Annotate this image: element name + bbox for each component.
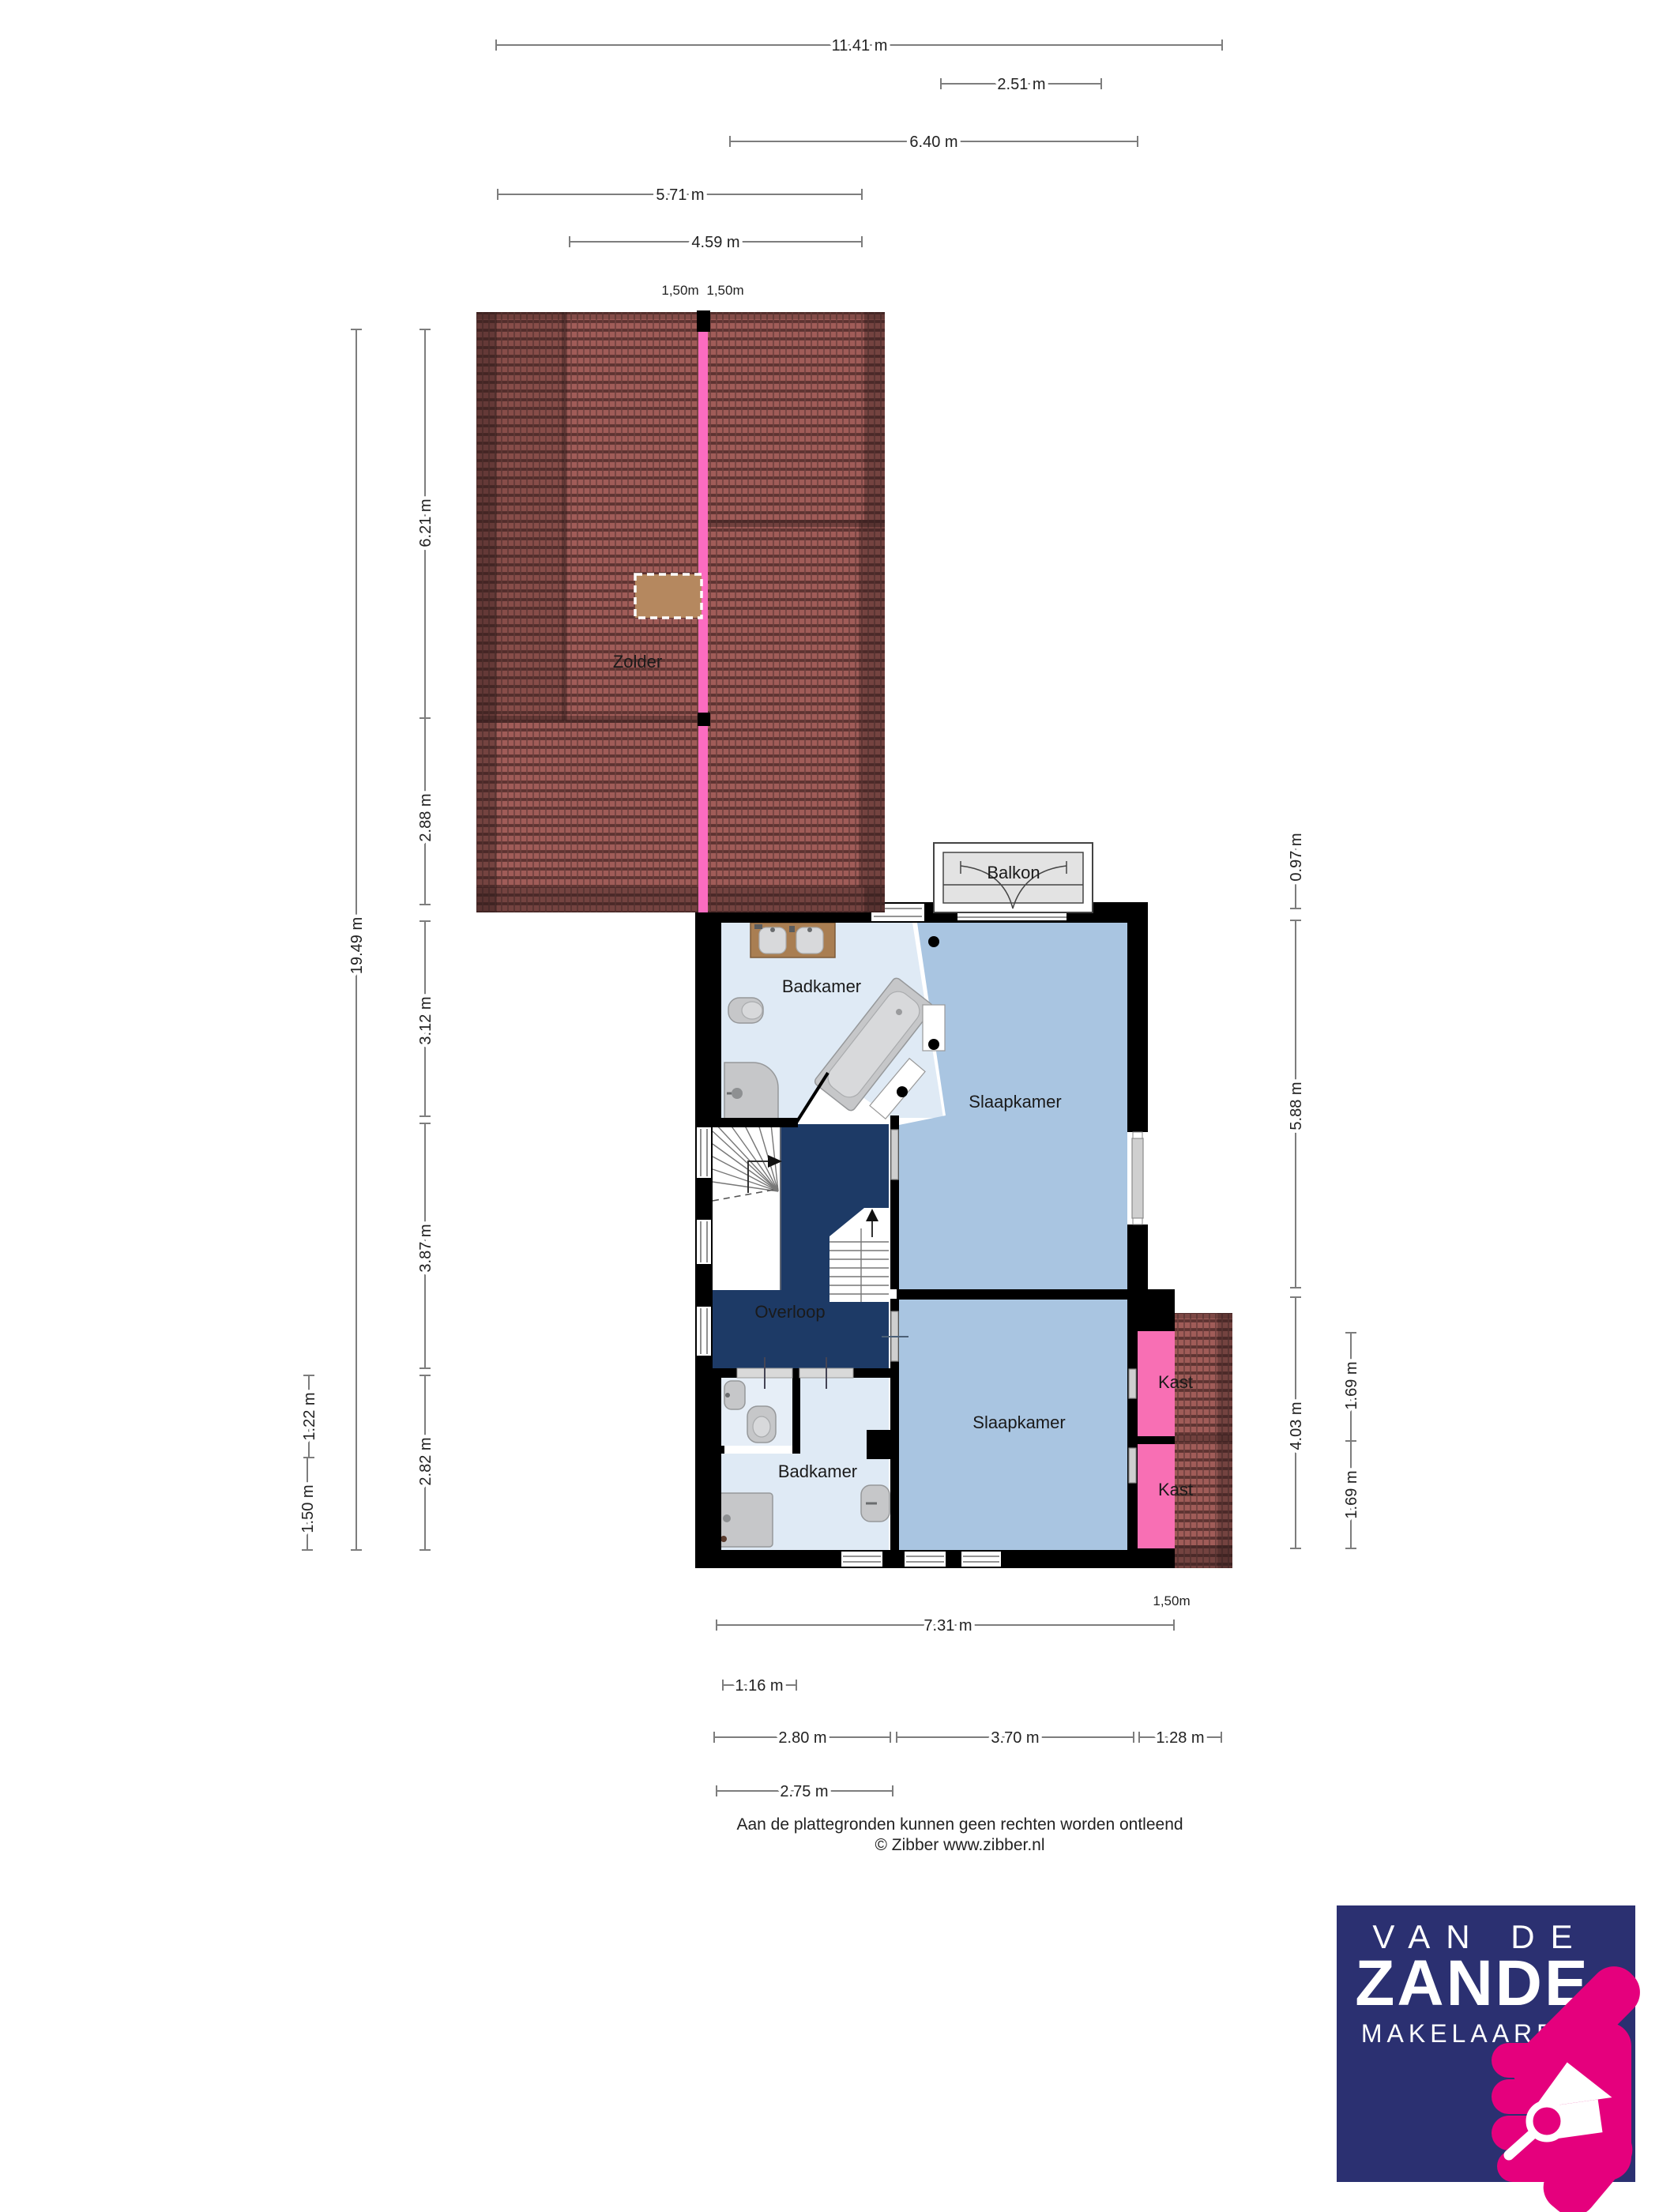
label-slaapkamer-1: Slaapkamer: [969, 1092, 1061, 1112]
dim-left-3: 3.12 m: [417, 996, 434, 1044]
door-slaapkamer-1: [891, 1130, 898, 1179]
dim-right-3: 1.69 m: [1343, 1361, 1360, 1409]
logo-line2: ZANDE: [1355, 1947, 1589, 2019]
label-balkon: Balkon: [987, 863, 1040, 882]
label-zolder: Zolder: [613, 652, 662, 671]
dim-bottom-0: 7.31 m: [924, 1617, 972, 1635]
dim-bottom-4: 1.28 m: [1156, 1729, 1204, 1747]
dim-left-4: 3.87 m: [417, 1224, 434, 1272]
dim-left-2: 2.88 m: [417, 793, 434, 841]
dim-right-2: 4.03 m: [1288, 1401, 1305, 1450]
door-kast-1: [1129, 1369, 1136, 1398]
dim-right-1: 5.88 m: [1288, 1082, 1305, 1130]
footer-disclaimer: Aan de plattegronden kunnen geen rechten…: [736, 1815, 1183, 1834]
floorplan-page: Zolder Badkamer Slaapkamer Balkon Overlo…: [0, 0, 1659, 2212]
label-kast-2: Kast: [1158, 1480, 1193, 1499]
dim-left-5: 2.82 m: [417, 1437, 434, 1485]
footer: Aan de plattegronden kunnen geen rechten…: [736, 1815, 1183, 1854]
dim-left-0: 19.49 m: [348, 917, 366, 974]
dim-right-0: 0.97 m: [1288, 833, 1305, 881]
dim-top-1: 2.51 m: [997, 76, 1045, 93]
dim-top-small-0: 1,50m: [661, 283, 698, 298]
door-kast-2: [1129, 1448, 1136, 1483]
floorplan-canvas: Zolder Badkamer Slaapkamer Balkon Overlo…: [0, 0, 1659, 2212]
dim-top-2: 6.40 m: [909, 134, 957, 151]
label-slaapkamer-2: Slaapkamer: [972, 1413, 1065, 1432]
dim-bottom-2: 2.80 m: [778, 1729, 826, 1747]
dim-bottom-1: 1.16 m: [735, 1677, 783, 1695]
label-kast-1: Kast: [1158, 1372, 1193, 1392]
door-slaapkamer-1-right: [1132, 1138, 1143, 1218]
dimensions-bottom: 7.31 m 1.16 m 2.80 m 3.70 m 1.28 m 2.75 …: [714, 1593, 1221, 1800]
dim-left-6: 1.22 m: [301, 1392, 318, 1440]
dimensions-right: 0.97 m 5.88 m 4.03 m 1.69 m 1.69 m: [1288, 833, 1360, 1548]
winder-stairs: [713, 1124, 782, 1290]
footer-copyright: © Zibber www.zibber.nl: [875, 1836, 1044, 1854]
dim-right-4: 1.69 m: [1343, 1470, 1360, 1518]
label-badkamer-beneden: Badkamer: [778, 1461, 857, 1481]
dimensions-top: 11.41 m 2.51 m 6.40 m 5.71 m 4.59 m 1,50…: [496, 37, 1222, 298]
dimensions-left: 19.49 m 6.21 m 2.88 m 3.12 m 3.87 m 2.82…: [299, 329, 434, 1550]
dim-bottom-3: 3.70 m: [991, 1729, 1039, 1747]
logo-van-de-zande: VAN DE ZANDE MAKELAARDIJ: [1337, 1905, 1650, 2212]
label-overloop: Overloop: [754, 1302, 825, 1322]
roof-zolder: [476, 310, 885, 912]
dim-top-small-1: 1,50m: [706, 283, 743, 298]
dim-top-0: 11.41 m: [832, 37, 888, 55]
dim-left-1: 6.21 m: [417, 498, 434, 547]
dim-top-4: 4.59 m: [691, 234, 739, 251]
dim-left-7: 1.50 m: [299, 1484, 317, 1533]
label-badkamer-boven: Badkamer: [782, 976, 861, 996]
dim-bottom-5: 2.75 m: [780, 1783, 828, 1800]
dim-top-3: 5.71 m: [656, 186, 704, 204]
skylight: [635, 574, 702, 618]
wc-door-gap: [724, 1446, 792, 1454]
dim-floating: 1,50m: [1153, 1593, 1190, 1608]
roof-kast-strip: [1175, 1313, 1232, 1568]
